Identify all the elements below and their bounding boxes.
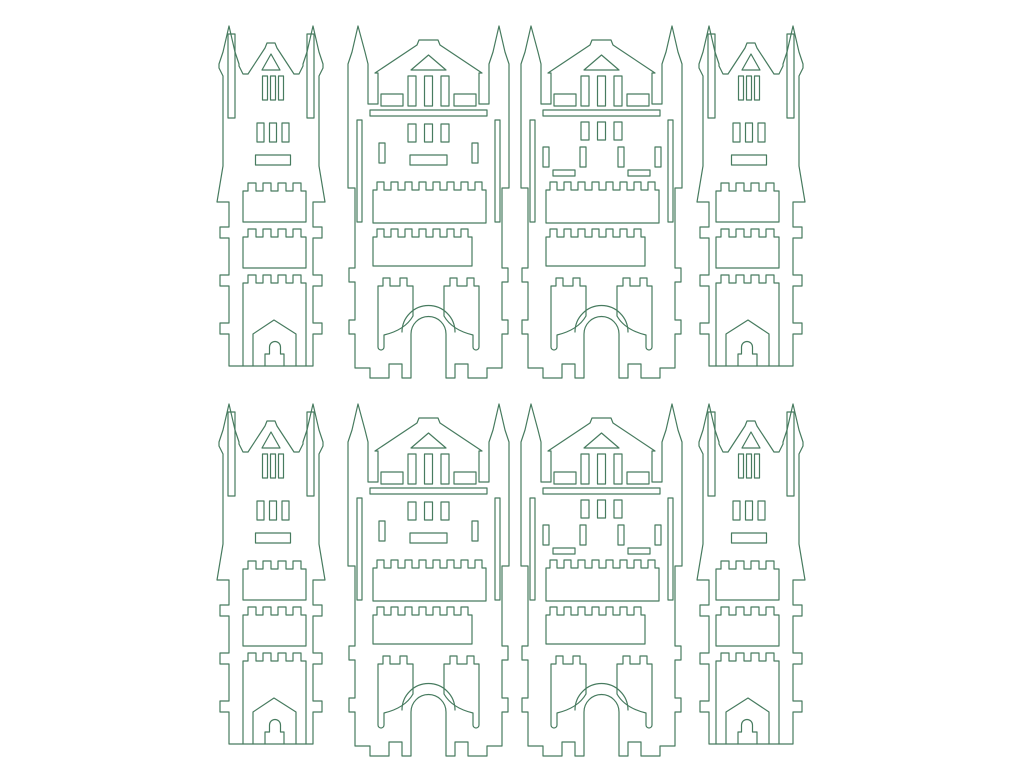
cut-line (521, 26, 682, 378)
cut-line (742, 54, 760, 70)
cut-line (716, 183, 779, 222)
cut-line (543, 525, 549, 545)
cut-line (755, 76, 760, 100)
cut-line (738, 342, 757, 367)
cut-line (411, 55, 446, 70)
cut-line (454, 472, 476, 484)
castle-piece-gatehouse-b-row1 (521, 26, 682, 378)
cut-line (279, 76, 284, 100)
cut-line (655, 525, 661, 545)
cut-line (370, 488, 487, 494)
cut-line (726, 320, 769, 366)
cut-line (614, 76, 622, 106)
cut-line (618, 147, 624, 167)
cut-line (655, 147, 661, 167)
cut-line (598, 122, 606, 140)
cut-line (668, 120, 673, 222)
cut-line (425, 76, 433, 106)
cut-line (381, 472, 403, 484)
cut-line (256, 155, 291, 165)
cut-line (408, 502, 416, 520)
cut-line (282, 501, 289, 520)
cut-line (738, 720, 757, 745)
cut-line (546, 607, 645, 644)
cut-line (521, 404, 682, 756)
cut-line (495, 120, 500, 222)
cut-line (425, 124, 433, 142)
cut-line (716, 229, 779, 268)
cut-line (348, 26, 509, 378)
cut-line (282, 123, 289, 142)
cut-line (379, 521, 385, 541)
cut-line (262, 432, 280, 448)
cut-line (441, 454, 449, 484)
cut-line (441, 502, 449, 520)
cut-line (627, 472, 649, 484)
cut-line (243, 183, 306, 222)
cut-line (598, 500, 606, 518)
cut-line (598, 454, 606, 484)
cut-line (581, 76, 589, 106)
cut-line (581, 122, 589, 140)
cut-line (243, 561, 306, 600)
cut-line (580, 147, 586, 167)
cut-line (408, 454, 416, 484)
cut-line (262, 54, 280, 70)
cut-line (551, 656, 586, 728)
cut-line (553, 548, 575, 554)
cut-line (408, 124, 416, 142)
cut-line (370, 110, 487, 116)
cut-line (270, 501, 277, 520)
cut-line (742, 432, 760, 448)
cut-line (716, 607, 779, 646)
cut-line (543, 488, 660, 494)
cut-line (444, 656, 479, 728)
cut-sheet-canvas (0, 0, 1024, 768)
cut-line (425, 502, 433, 520)
castle-piece-tower-row1-left (217, 26, 325, 366)
cut-line (628, 170, 650, 176)
cut-line (543, 147, 549, 167)
cut-line (402, 306, 455, 332)
castle-piece-tower-row2-left (217, 404, 325, 744)
castle-piece-tower-row2-right (697, 404, 805, 744)
cut-line (444, 278, 479, 350)
cut-line (402, 684, 455, 710)
cut-line (628, 548, 650, 554)
cut-line (758, 123, 765, 142)
castle-piece-tower-row1-right (697, 26, 805, 366)
cut-line (257, 501, 264, 520)
cut-line (739, 454, 744, 478)
cut-line (271, 76, 276, 100)
cut-line (733, 123, 740, 142)
cut-line (381, 94, 403, 106)
cut-line (257, 123, 264, 142)
cut-line (357, 498, 362, 600)
cut-line (746, 123, 753, 142)
cut-line (543, 110, 660, 116)
cut-line (618, 525, 624, 545)
cut-line (530, 498, 535, 600)
cut-line (256, 533, 291, 543)
cut-line (584, 55, 619, 70)
cut-line (410, 533, 447, 543)
cut-line (617, 656, 652, 728)
cut-line (614, 122, 622, 140)
cut-line (265, 342, 284, 367)
cut-line (746, 501, 753, 520)
cut-line (441, 76, 449, 106)
cut-line (270, 123, 277, 142)
cut-line (739, 76, 744, 100)
cut-line (614, 500, 622, 518)
cut-line (379, 143, 385, 163)
cut-line (546, 182, 659, 223)
cut-line (441, 124, 449, 142)
cut-line (581, 454, 589, 484)
cut-line (373, 607, 472, 644)
cut-line (716, 561, 779, 600)
cut-line (554, 472, 576, 484)
cut-line (243, 229, 306, 268)
cut-line (726, 698, 769, 744)
cut-line (357, 120, 362, 222)
cut-line (617, 278, 652, 350)
cut-line (373, 560, 486, 601)
cut-line (580, 525, 586, 545)
cut-line (378, 656, 413, 728)
cut-line (454, 94, 476, 106)
cut-line (755, 454, 760, 478)
castle-piece-gatehouse-a-row2 (348, 404, 509, 756)
cut-line (747, 454, 752, 478)
castle-piece-gatehouse-a-row1 (348, 26, 509, 378)
cut-line (732, 155, 767, 165)
cut-line (747, 76, 752, 100)
cut-line (378, 278, 413, 350)
cut-line (425, 454, 433, 484)
cut-line (243, 607, 306, 646)
cut-line (732, 533, 767, 543)
cut-line (554, 94, 576, 106)
cut-line (614, 454, 622, 484)
cut-line (263, 76, 268, 100)
cut-line (411, 433, 446, 448)
cut-line (279, 454, 284, 478)
cut-line (472, 521, 478, 541)
cut-line (410, 155, 447, 165)
cut-line (373, 182, 486, 223)
cut-line (575, 306, 628, 332)
cut-line (546, 560, 659, 601)
cut-line (546, 229, 645, 266)
cut-line (598, 76, 606, 106)
cut-line (530, 120, 535, 222)
cut-line (758, 501, 765, 520)
cut-line (495, 498, 500, 600)
cut-line (584, 433, 619, 448)
cut-line (263, 454, 268, 478)
cut-line (472, 143, 478, 163)
cut-line (271, 454, 276, 478)
castle-piece-gatehouse-b-row2 (521, 404, 682, 756)
cut-line (348, 404, 509, 756)
cut-line (733, 501, 740, 520)
cut-line (551, 278, 586, 350)
cut-line (668, 498, 673, 600)
cut-line (253, 320, 296, 366)
cut-line (265, 720, 284, 745)
cut-line (627, 94, 649, 106)
cut-line (253, 698, 296, 744)
cut-line (575, 684, 628, 710)
cut-template-sheet (0, 0, 1024, 768)
cut-line (553, 170, 575, 176)
cut-line (581, 500, 589, 518)
cut-line (408, 76, 416, 106)
cut-line (373, 229, 472, 266)
